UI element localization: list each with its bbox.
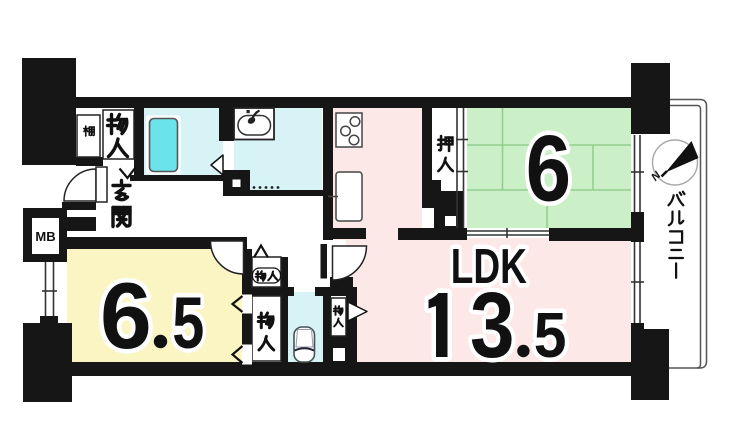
svg-text:MB: MB: [35, 229, 55, 244]
svg-text:3: 3: [470, 273, 514, 377]
svg-text:6: 6: [100, 263, 152, 369]
svg-text:5: 5: [172, 281, 204, 363]
svg-text:6: 6: [526, 116, 571, 221]
svg-text:5: 5: [534, 300, 567, 372]
